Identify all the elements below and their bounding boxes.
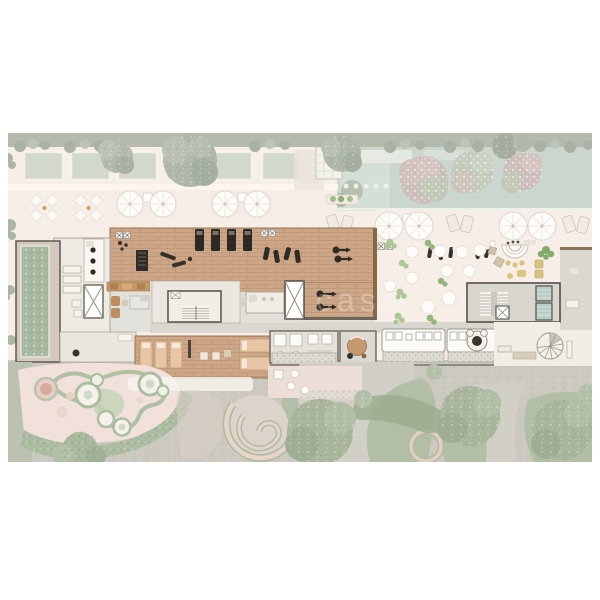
svg-text:casa: casa: [316, 282, 404, 318]
